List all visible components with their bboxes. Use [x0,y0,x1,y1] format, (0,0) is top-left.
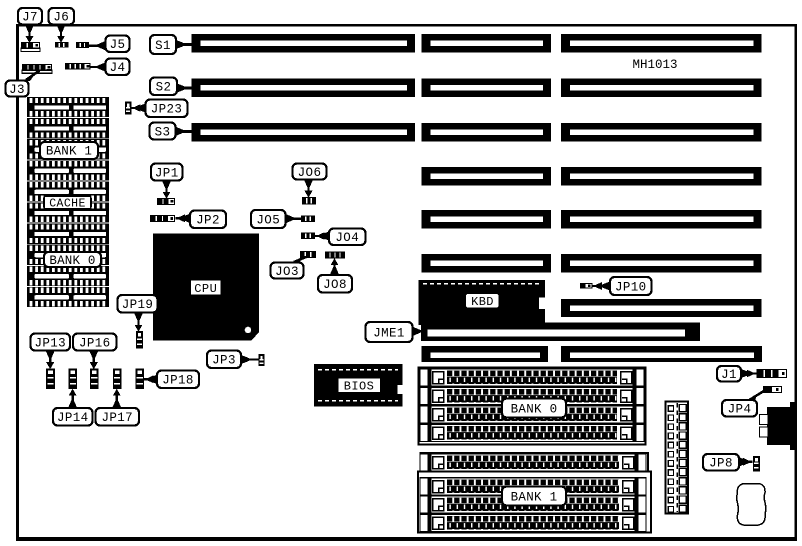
svg-text:JO8: JO8 [323,278,347,292]
svg-text:J7: J7 [22,11,38,25]
svg-text:JO4: JO4 [335,231,359,245]
svg-text:JME1: JME1 [373,326,405,340]
svg-text:JP8: JP8 [709,457,733,471]
svg-text:BANK 0: BANK 0 [49,254,95,268]
svg-text:CPU: CPU [194,282,217,296]
svg-text:JP1: JP1 [155,166,179,180]
svg-text:JP10: JP10 [615,280,647,294]
svg-text:JP16: JP16 [79,336,111,350]
svg-text:S1: S1 [155,39,171,53]
svg-text:J3: J3 [9,83,25,97]
svg-text:S3: S3 [155,125,171,139]
svg-text:S2: S2 [156,81,172,95]
svg-text:JP4: JP4 [728,403,752,417]
svg-text:CACHE: CACHE [49,198,86,211]
svg-text:BIOS: BIOS [344,380,374,394]
svg-text:JO6: JO6 [298,166,322,180]
svg-text:KBD: KBD [471,295,494,309]
svg-text:JP23: JP23 [151,103,183,117]
svg-text:BANK 0: BANK 0 [511,402,558,416]
svg-text:JP14: JP14 [57,411,89,425]
svg-text:JP3: JP3 [212,354,236,368]
svg-text:J1: J1 [721,368,737,382]
svg-text:BANK 1: BANK 1 [46,145,92,159]
svg-text:JP18: JP18 [162,374,194,388]
svg-text:J5: J5 [110,38,126,52]
svg-text:JO5: JO5 [256,213,280,227]
svg-text:JP17: JP17 [101,411,133,425]
svg-text:MH1013: MH1013 [632,58,677,72]
svg-text:JP19: JP19 [122,298,154,312]
svg-text:J4: J4 [110,61,126,75]
svg-text:J6: J6 [53,11,69,25]
svg-text:BANK 1: BANK 1 [511,490,558,504]
svg-text:JO3: JO3 [275,265,299,279]
svg-text:JP2: JP2 [196,214,220,228]
svg-text:JP13: JP13 [34,336,66,350]
